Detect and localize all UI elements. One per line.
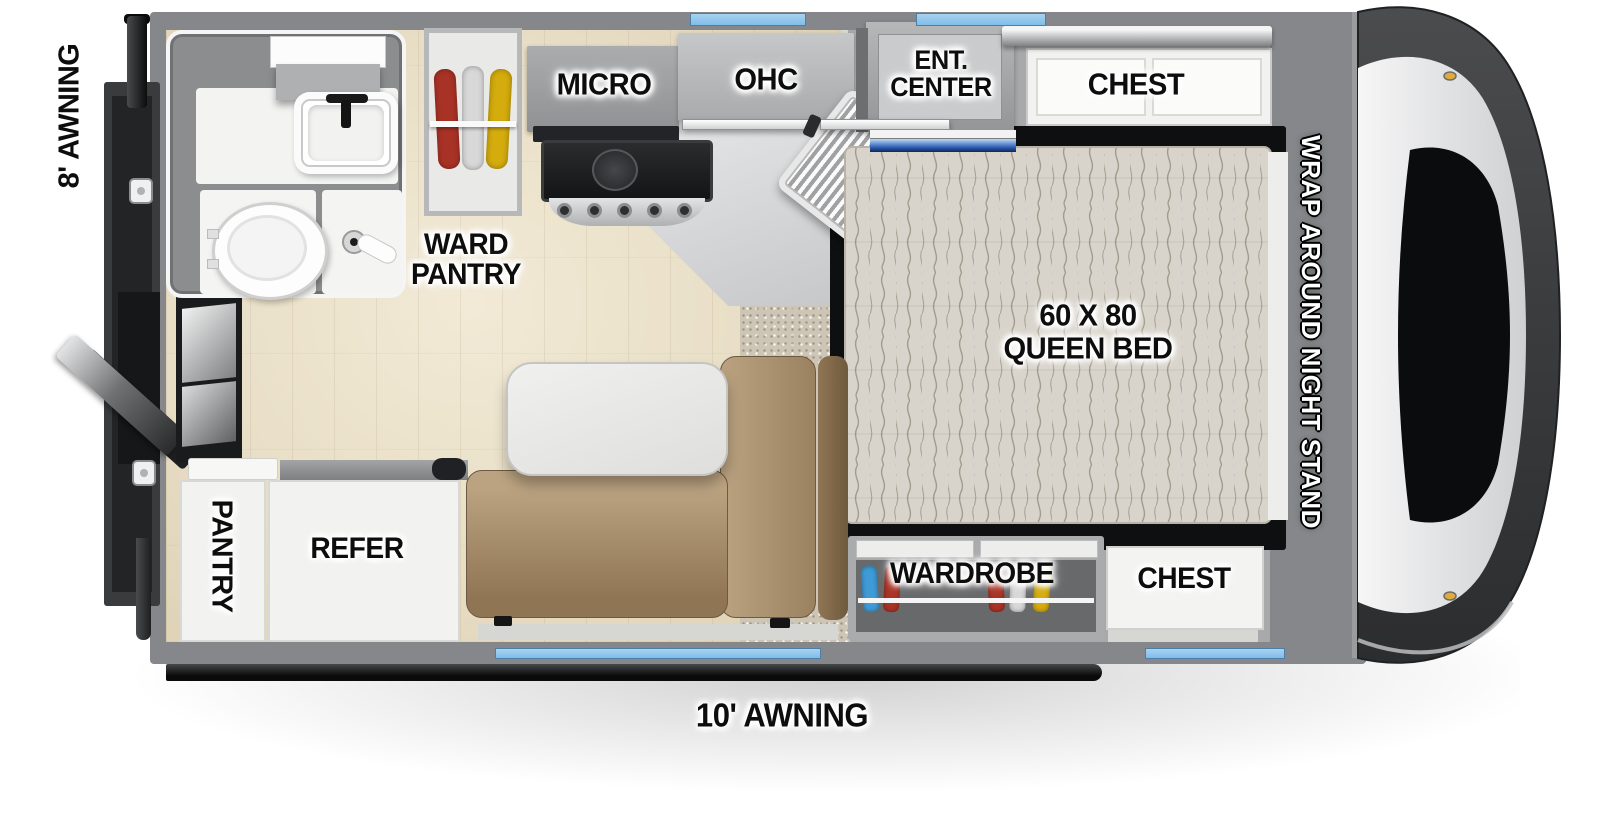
toilet — [212, 202, 328, 300]
label-night-stand: WRAP AROUND NIGHT STAND — [1298, 135, 1324, 529]
ward-pantry-cabinet — [424, 28, 522, 216]
label-wardrobe: WARDROBE — [890, 559, 1054, 589]
latch-dot — [140, 469, 148, 477]
toilet-hinge — [207, 229, 219, 239]
label-micro: MICRO — [557, 69, 652, 100]
label-awning-bottom: 10' AWNING — [696, 699, 868, 732]
awning-rail-10ft — [166, 664, 1102, 681]
window-roadside-1 — [690, 13, 806, 26]
drain-pipe — [136, 538, 151, 640]
sofa-foot — [770, 618, 790, 628]
faucet-stem — [341, 100, 351, 128]
night-stand-shelf — [1002, 26, 1272, 46]
wardrobe-door-top — [856, 540, 974, 558]
hanger-rod — [858, 598, 1094, 603]
clearance-light-top — [1444, 72, 1456, 80]
stove-knob — [677, 203, 692, 218]
toilet-hinge — [207, 259, 219, 269]
counter-light-bar-left — [682, 119, 812, 130]
label-ohc: OHC — [734, 64, 797, 95]
dinette-arm-cushion — [818, 356, 848, 620]
label-awning-left: 8' AWNING — [56, 44, 85, 189]
counter-light-bar-right — [820, 119, 950, 130]
label-refer: REFER — [310, 534, 403, 564]
headboard-shelf — [1268, 152, 1288, 520]
refrigerator-vent — [432, 458, 466, 480]
label-chest-rear: CHEST — [1137, 564, 1230, 594]
bathroom-sink — [294, 92, 398, 174]
cooktop — [541, 140, 713, 202]
hanger-blue — [860, 565, 879, 612]
hanger-red — [433, 68, 460, 169]
stove-knob — [617, 203, 632, 218]
window-roadside-2 — [916, 13, 1046, 26]
dinette-seat — [466, 470, 728, 618]
label-ward-pantry: WARD PANTRY — [404, 230, 528, 290]
door-latch-upper — [129, 178, 153, 204]
clearance-light-bottom — [1444, 592, 1456, 600]
wardrobe-door-top — [980, 540, 1098, 558]
ent-shelf — [870, 130, 1016, 139]
window-campside-1 — [495, 648, 821, 659]
hanger-white — [462, 66, 484, 170]
entry-step-upper — [182, 303, 236, 383]
stove-knob — [587, 203, 602, 218]
nose-window — [1398, 147, 1510, 522]
stove-knob — [557, 203, 572, 218]
cabinet-divider — [856, 28, 868, 132]
toilet-seat — [227, 215, 307, 281]
floorplan-canvas: 8' AWNING WARD PANTRY MICRO OHC ENT. CEN… — [0, 0, 1600, 826]
burner-icon — [592, 149, 638, 191]
entry-step-lower — [182, 381, 236, 447]
stove-knob — [647, 203, 662, 218]
stove-knob-band — [549, 198, 705, 226]
bathroom — [166, 30, 406, 298]
label-queen-bed: 60 X 80 QUEEN BED — [994, 299, 1182, 364]
hanger-yellow — [485, 68, 512, 169]
latch-dot — [137, 187, 145, 195]
sofa-foot — [494, 616, 512, 626]
window-campside-2 — [1145, 648, 1285, 659]
floor-platform-rear — [1108, 630, 1258, 642]
dinette-corner-cushion — [720, 356, 816, 618]
label-chest-front: CHEST — [1088, 69, 1184, 100]
label-pantry: PANTRY — [207, 500, 236, 613]
ent-led-strip — [870, 139, 1016, 152]
front-cap-nose — [1352, 4, 1566, 666]
pantry-lid — [188, 458, 278, 480]
dinette-table — [506, 362, 728, 476]
door-latch-lower — [132, 460, 156, 486]
awning-rail-8ft — [127, 16, 147, 108]
label-ent-center: ENT. CENTER — [879, 47, 1003, 101]
hanger-rod — [430, 121, 516, 127]
